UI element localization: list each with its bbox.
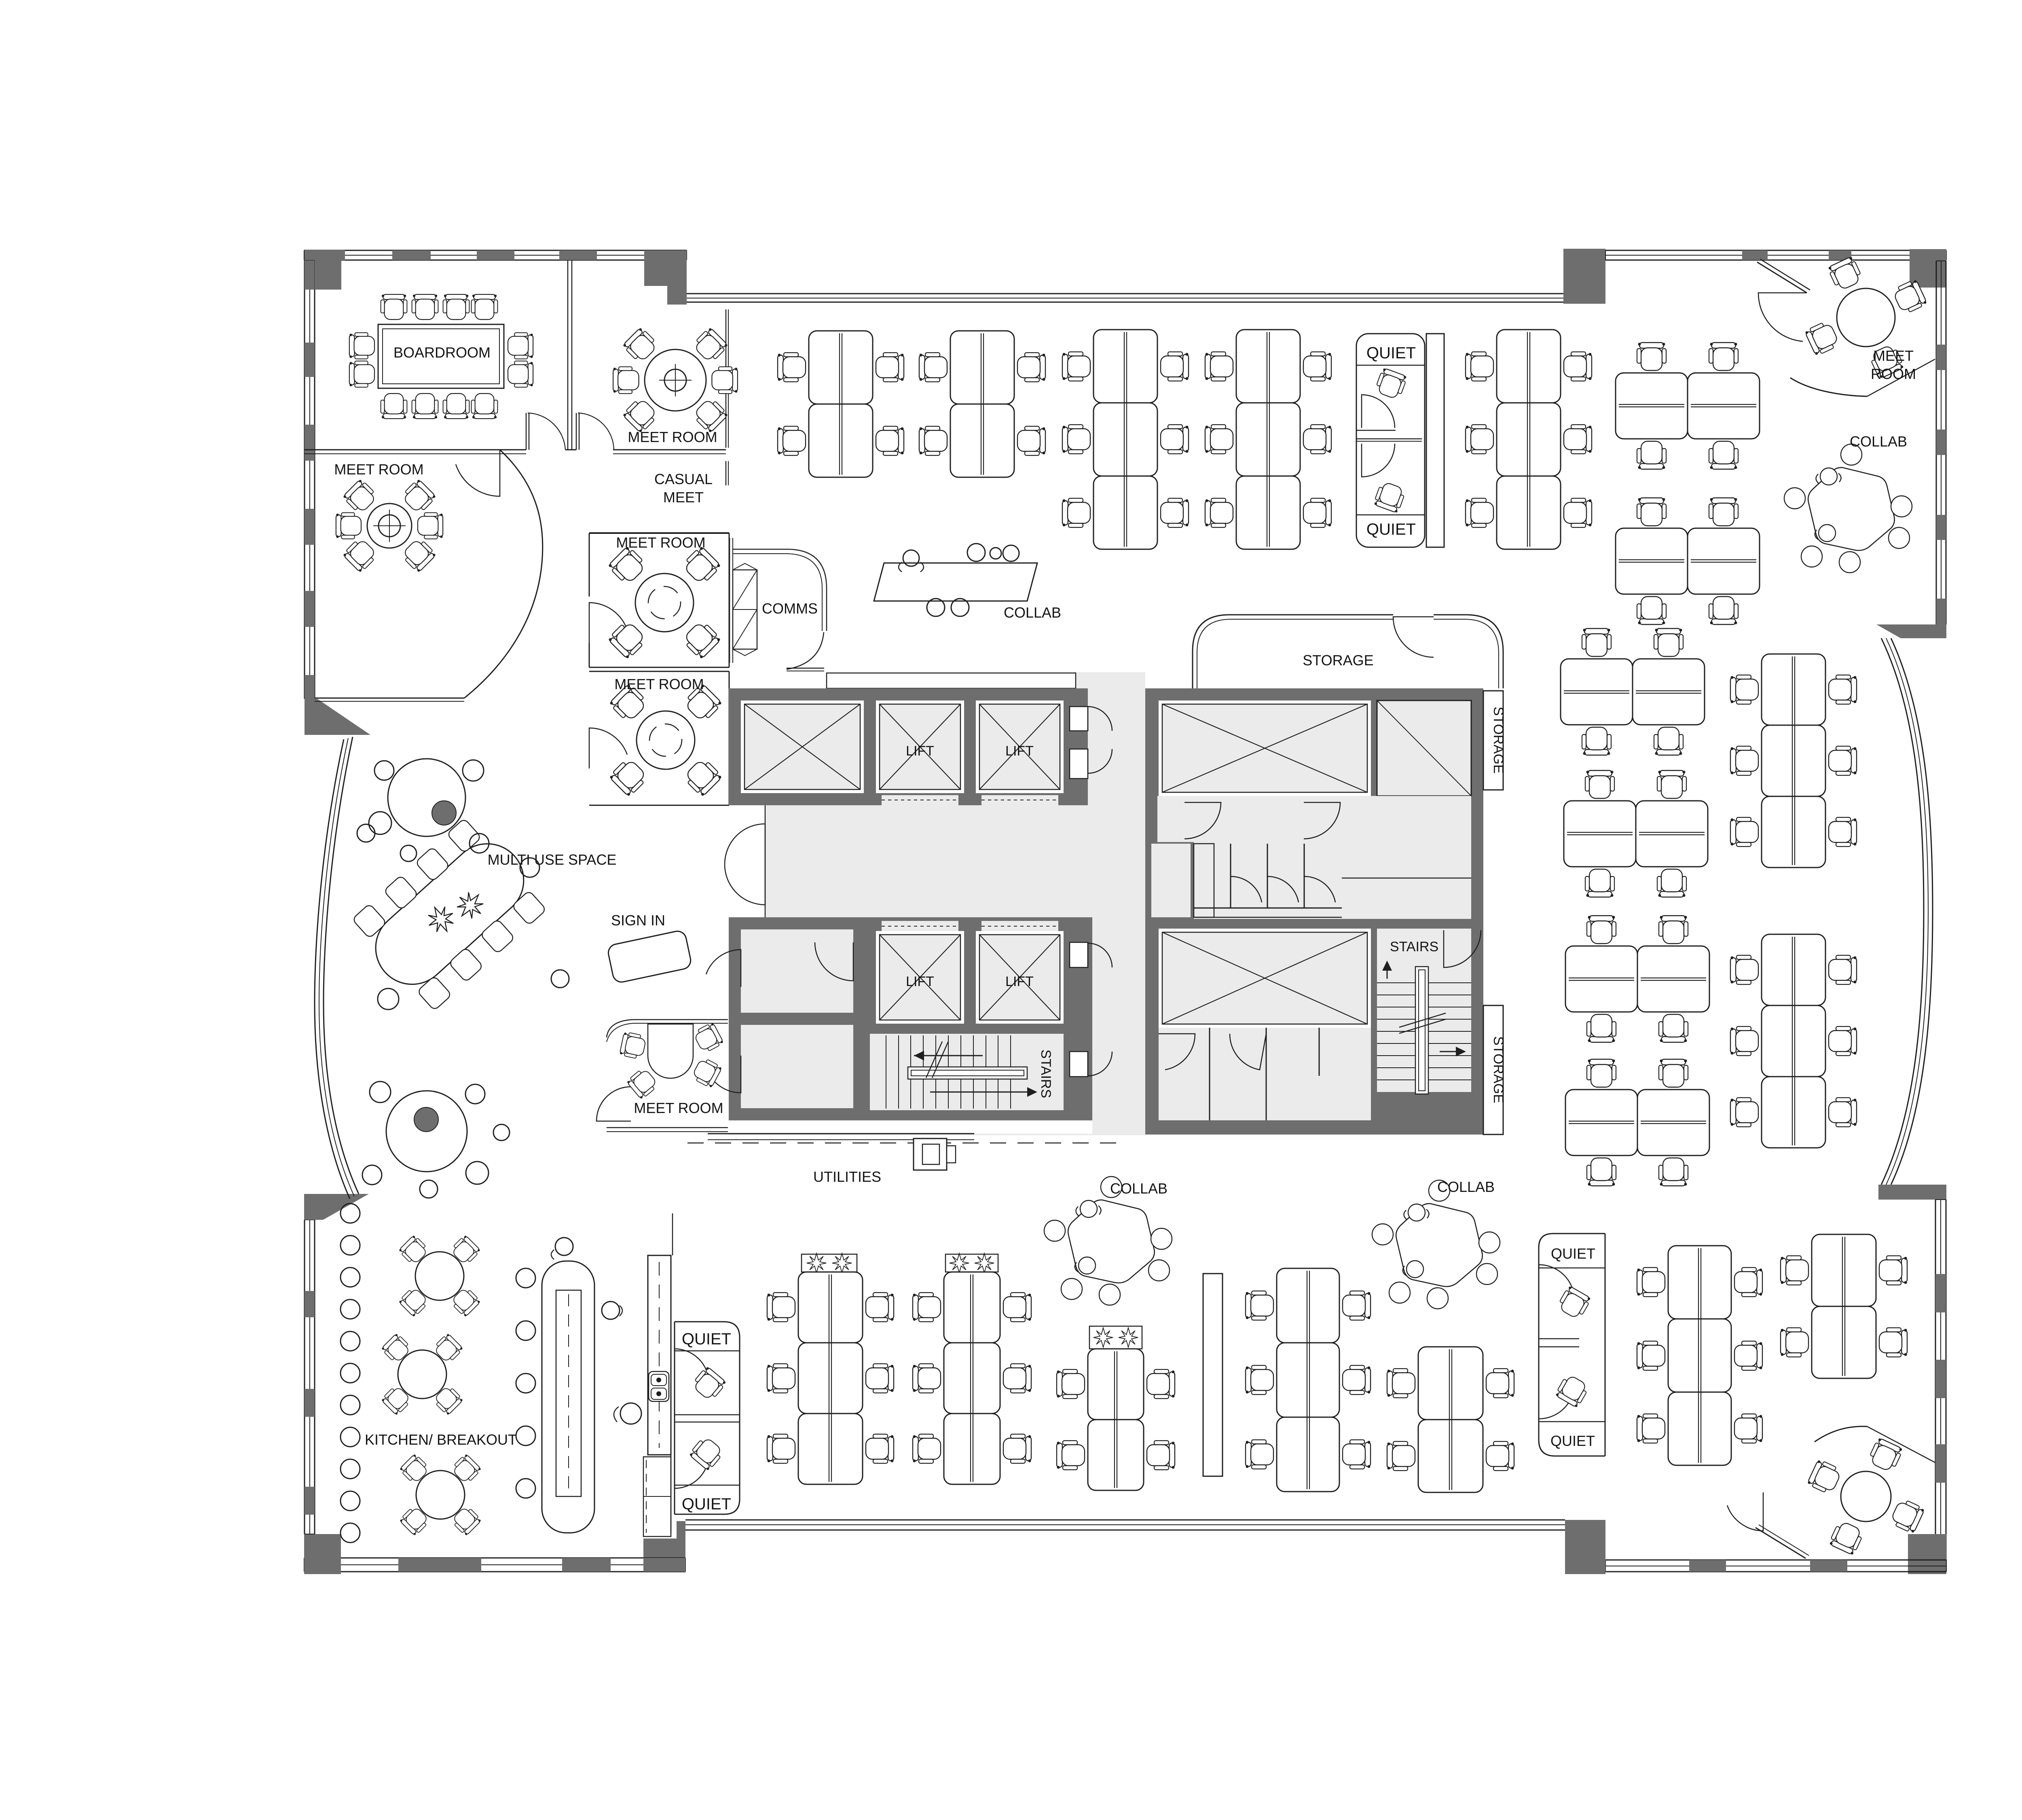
svg-text:MEET ROOM: MEET ROOM	[634, 1100, 723, 1116]
svg-text:ROOM: ROOM	[1871, 366, 1916, 382]
svg-text:MULTI USE SPACE: MULTI USE SPACE	[488, 851, 617, 868]
svg-text:QUIET: QUIET	[1550, 1433, 1595, 1449]
svg-text:LIFT: LIFT	[906, 743, 934, 759]
svg-text:COLLAB: COLLAB	[1850, 433, 1907, 450]
svg-text:COMMS: COMMS	[762, 600, 818, 617]
svg-text:UTILITIES: UTILITIES	[813, 1168, 881, 1185]
svg-text:COLLAB: COLLAB	[1004, 604, 1061, 621]
svg-text:BOARDROOM: BOARDROOM	[393, 344, 491, 361]
svg-text:LIFT: LIFT	[1005, 743, 1034, 759]
svg-text:MEET: MEET	[663, 489, 704, 506]
svg-text:STAIRS: STAIRS	[1390, 939, 1438, 954]
svg-text:COLLAB: COLLAB	[1437, 1179, 1495, 1195]
svg-text:MEET ROOM: MEET ROOM	[616, 534, 705, 551]
svg-text:QUIET: QUIET	[682, 1495, 731, 1513]
svg-text:MEET ROOM: MEET ROOM	[614, 676, 704, 692]
svg-text:COLLAB: COLLAB	[1110, 1180, 1168, 1197]
svg-text:QUIET: QUIET	[1366, 344, 1416, 362]
svg-text:STAIRS: STAIRS	[1038, 1050, 1053, 1098]
svg-text:SIGN IN: SIGN IN	[611, 912, 665, 929]
svg-text:MEET ROOM: MEET ROOM	[628, 429, 717, 445]
svg-text:LIFT: LIFT	[906, 974, 934, 989]
svg-text:STORAGE: STORAGE	[1303, 652, 1373, 669]
svg-text:MEET ROOM: MEET ROOM	[334, 461, 423, 478]
svg-text:STORAGE: STORAGE	[1491, 707, 1506, 774]
svg-text:LIFT: LIFT	[1005, 974, 1034, 989]
svg-text:STORAGE: STORAGE	[1491, 1036, 1506, 1103]
svg-text:MEET: MEET	[1873, 347, 1914, 364]
svg-text:QUIET: QUIET	[682, 1330, 731, 1348]
svg-text:QUIET: QUIET	[1551, 1245, 1595, 1262]
svg-text:KITCHEN/ BREAKOUT: KITCHEN/ BREAKOUT	[365, 1431, 517, 1448]
svg-text:QUIET: QUIET	[1366, 521, 1416, 538]
svg-text:CASUAL: CASUAL	[654, 471, 713, 487]
